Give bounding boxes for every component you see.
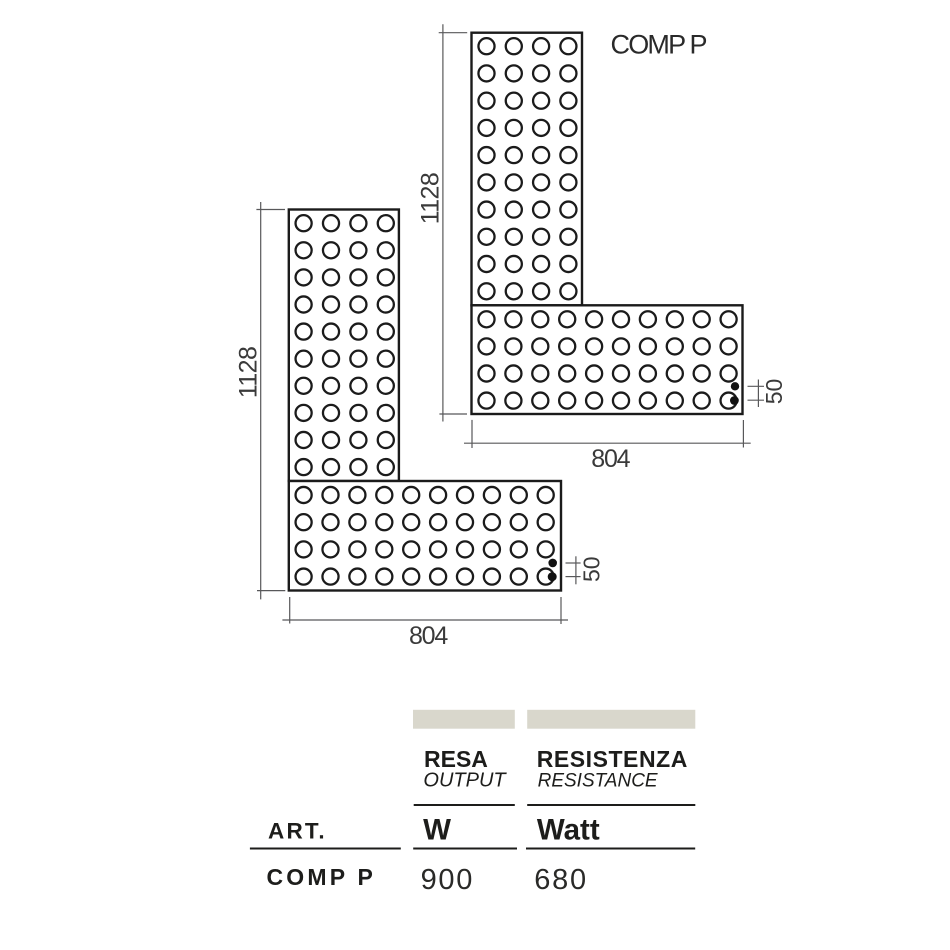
svg-text:ART.: ART.: [268, 819, 327, 844]
svg-text:RESISTENZA: RESISTENZA: [537, 746, 688, 772]
svg-text:1128: 1128: [235, 347, 263, 398]
svg-text:RESISTANCE: RESISTANCE: [538, 771, 658, 792]
svg-text:Watt: Watt: [537, 814, 600, 847]
svg-text:680: 680: [534, 864, 588, 896]
svg-text:900: 900: [421, 864, 475, 896]
svg-text:OUTPUT: OUTPUT: [423, 770, 507, 792]
svg-text:RESA: RESA: [424, 746, 488, 772]
svg-text:50: 50: [579, 556, 605, 582]
svg-text:COMP P: COMP P: [611, 29, 707, 59]
svg-text:804: 804: [591, 445, 630, 473]
svg-text:1128: 1128: [416, 173, 444, 224]
svg-text:50: 50: [761, 379, 787, 405]
svg-text:COMP P: COMP P: [267, 864, 377, 890]
svg-text:804: 804: [409, 622, 448, 650]
svg-text:W: W: [423, 814, 451, 847]
